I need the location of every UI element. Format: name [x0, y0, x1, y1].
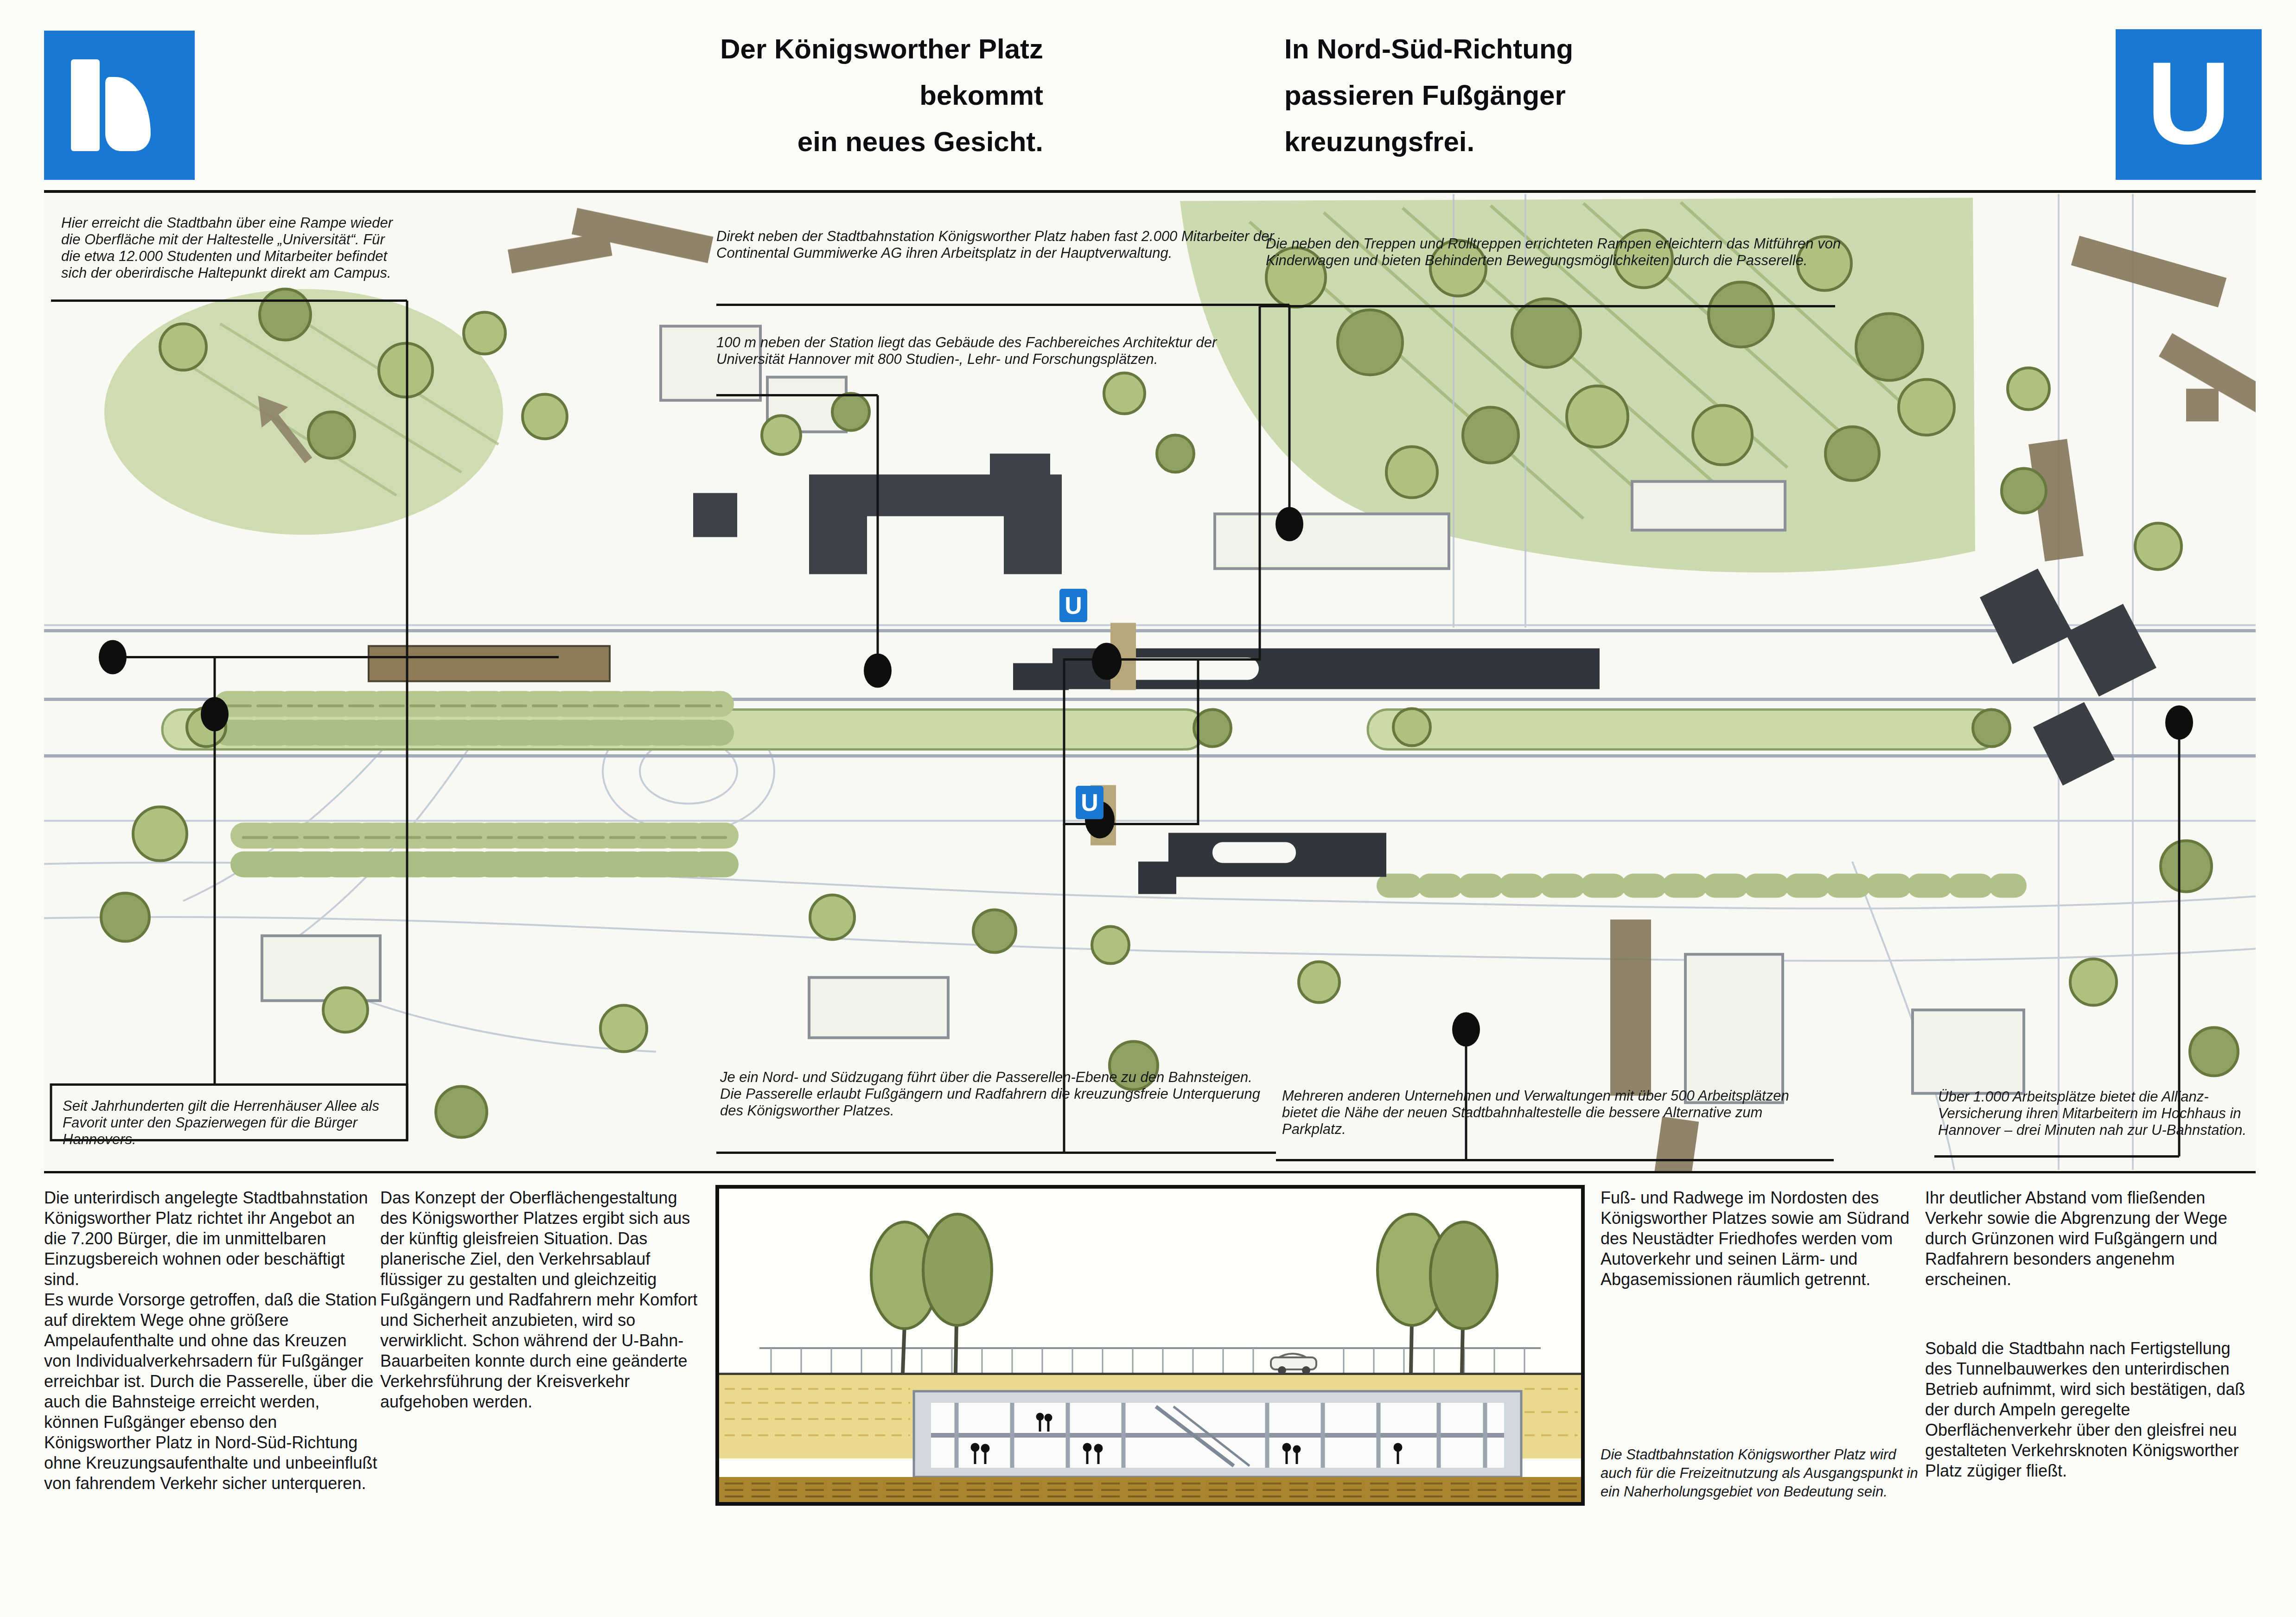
station-cross-section-figure	[715, 1185, 1585, 1506]
annotation-rampen-passerelle: Die neben den Treppen und Rolltreppen er…	[1266, 236, 1850, 269]
brochure-page: Der Königsworther Platz bekommt ein neue…	[0, 0, 2296, 1617]
site-plan-map: U U Hier erreicht die Stadtbahn über ein…	[44, 193, 2256, 1171]
headline-left: Der Königsworther Platz bekommt ein neue…	[672, 26, 1043, 165]
headline-left-line2: bekommt	[672, 72, 1043, 119]
body-column-2: Das Konzept der Oberflächengestaltung de…	[380, 1188, 705, 1412]
body-column-1-paragraph-2: Es wurde Vorsorge getroffen, daß die Sta…	[44, 1290, 378, 1494]
headline-right-line3: kreuzungsfrei.	[1284, 119, 1725, 165]
annotation-herrenhaeuser-allee: Seit Jahrhunderten gilt die Herrenhäuser…	[63, 1098, 401, 1148]
u-bahn-logo: U	[2116, 29, 2262, 180]
headline-left-line3: ein neues Gesicht.	[672, 119, 1043, 165]
uestra-logo-leaf-shape	[105, 77, 151, 151]
body-column-1-paragraph-1: Die unterirdisch angelegte Stadtbahnstat…	[44, 1188, 378, 1290]
uestra-logo-bar-shape	[71, 59, 100, 151]
annotation-nord-sued-zugang: Je ein Nord- und Südzugang führt über di…	[720, 1069, 1267, 1119]
uestra-logo	[44, 31, 195, 180]
u-station-marker-south: U	[1076, 786, 1103, 819]
u-station-marker-north: U	[1059, 589, 1087, 622]
headline-right: In Nord-Süd-Richtung passieren Fußgänger…	[1284, 26, 1725, 165]
cross-section-drawing	[715, 1185, 1585, 1506]
u-bahn-logo-letter: U	[2147, 45, 2231, 162]
body-column-3: Fuß- und Radwege im Nordosten des Königs…	[1601, 1188, 1916, 1290]
annotation-unternehmen-parkplatz: Mehreren anderen Unternehmen und Verwalt…	[1282, 1088, 1815, 1138]
u-station-marker-letter: U	[1081, 789, 1098, 816]
body-column-3-paragraph-1: Fuß- und Radwege im Nordosten des Königs…	[1601, 1188, 1916, 1290]
body-column-2-paragraph-1: Das Konzept der Oberflächengestaltung de…	[380, 1188, 705, 1412]
headline-left-line1: Der Königsworther Platz	[672, 26, 1043, 72]
annotation-continental: Direkt neben der Stadtbahnstation Königs…	[716, 228, 1291, 261]
annotation-allianz-hochhaus: Über 1.000 Arbeitsplätze bietet die Alli…	[1938, 1089, 2263, 1139]
body-column-4-paragraph-1: Ihr deutlicher Abstand vom fließenden Ve…	[1925, 1188, 2257, 1290]
annotation-rampe-universitaet: Hier erreicht die Stadtbahn über eine Ra…	[61, 215, 400, 281]
headline-right-line1: In Nord-Süd-Richtung	[1284, 26, 1725, 72]
u-station-marker-letter: U	[1065, 592, 1082, 619]
body-column-4-paragraph-2: Sobald die Stadtbahn nach Fertigstellung…	[1925, 1338, 2257, 1481]
section-divider-rule	[44, 1171, 2256, 1173]
headline-right-line2: passieren Fußgänger	[1284, 72, 1725, 119]
figure-caption: Die Stadtbahnstation Königsworther Platz…	[1601, 1445, 1925, 1501]
body-column-4: Ihr deutlicher Abstand vom fließenden Ve…	[1925, 1188, 2257, 1481]
annotation-architektur-fakultaet: 100 m neben der Station liegt das Gebäud…	[716, 334, 1217, 368]
body-column-1: Die unterirdisch angelegte Stadtbahnstat…	[44, 1188, 378, 1494]
